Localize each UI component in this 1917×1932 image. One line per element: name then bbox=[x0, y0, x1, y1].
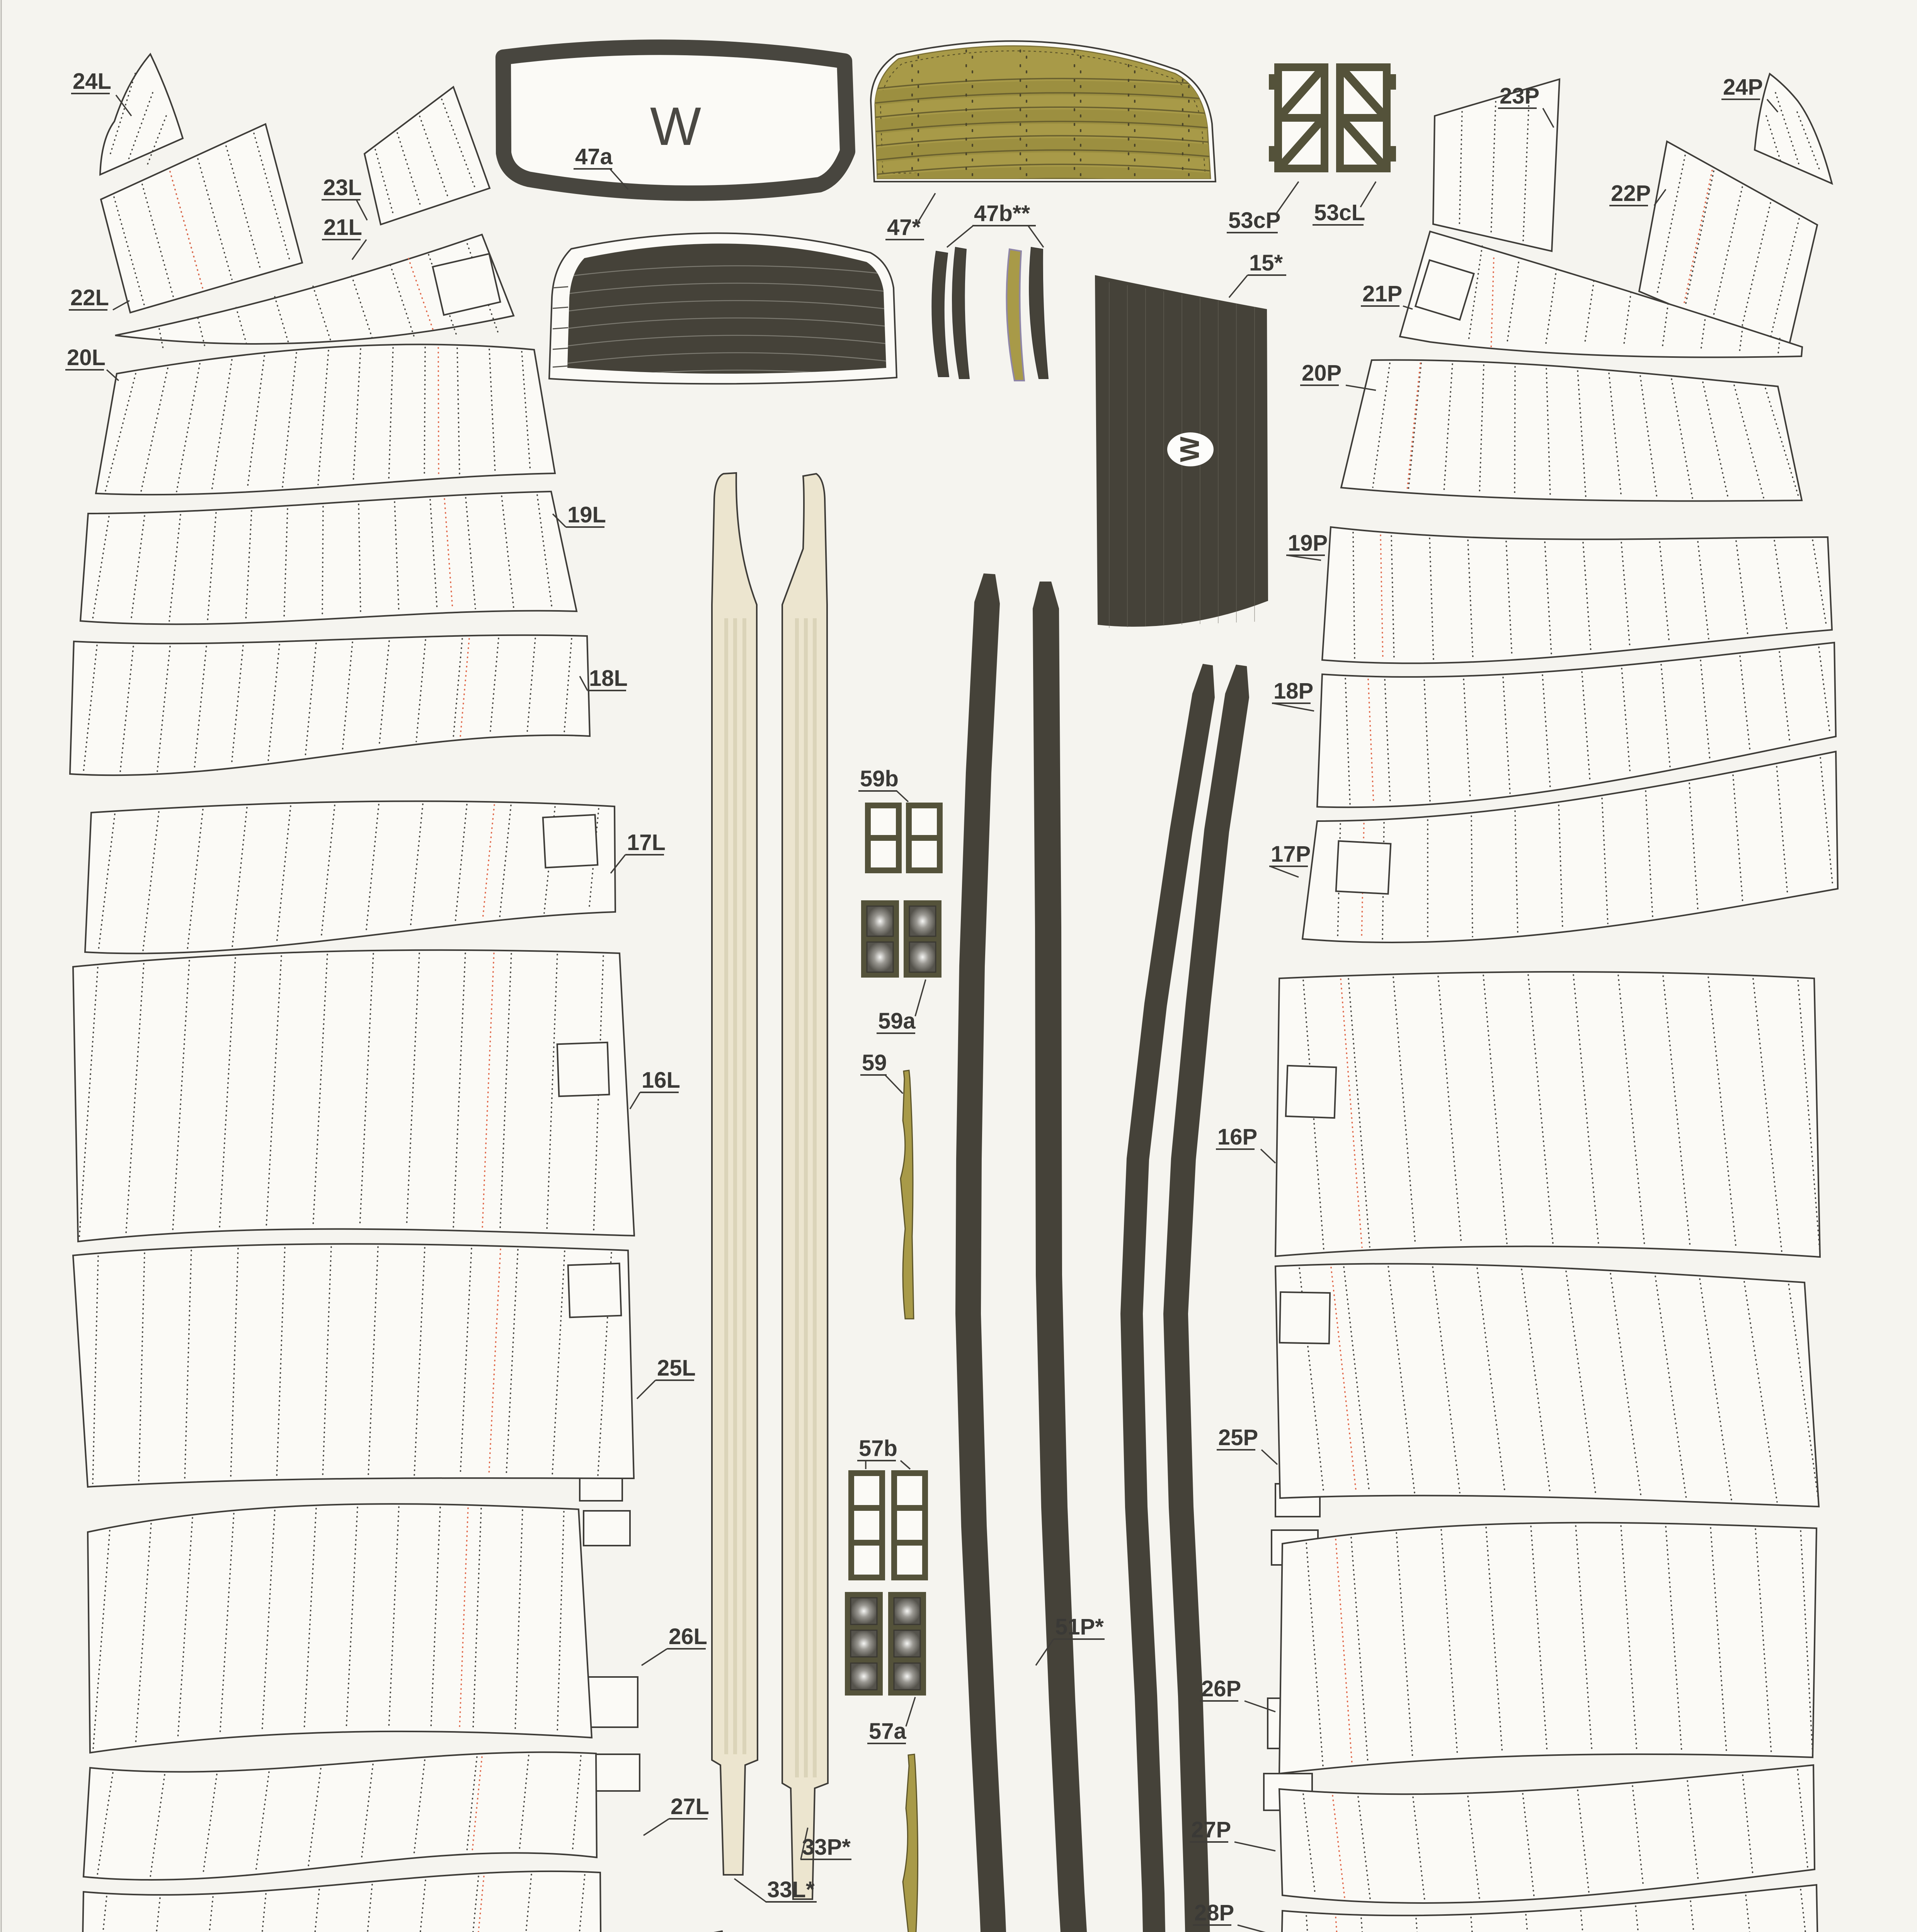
svg-text:W: W bbox=[650, 96, 701, 156]
svg-text:47*: 47* bbox=[887, 215, 921, 240]
svg-text:22P: 22P bbox=[1611, 181, 1651, 206]
svg-text:53cP: 53cP bbox=[1228, 208, 1280, 233]
svg-text:47a: 47a bbox=[575, 144, 613, 169]
svg-text:24P: 24P bbox=[1723, 75, 1763, 100]
svg-text:21P: 21P bbox=[1362, 281, 1402, 306]
svg-text:26P: 26P bbox=[1201, 1676, 1241, 1701]
svg-text:27L: 27L bbox=[671, 1794, 709, 1819]
svg-text:21L: 21L bbox=[323, 215, 362, 240]
svg-text:59a: 59a bbox=[878, 1009, 916, 1034]
svg-text:25L: 25L bbox=[657, 1355, 696, 1381]
svg-text:59b: 59b bbox=[860, 766, 899, 791]
svg-text:15*: 15* bbox=[1249, 250, 1283, 276]
svg-text:26L: 26L bbox=[669, 1624, 707, 1649]
svg-text:17L: 17L bbox=[627, 830, 666, 855]
svg-text:20P: 20P bbox=[1302, 361, 1342, 386]
svg-text:W: W bbox=[1175, 437, 1205, 462]
svg-text:53cL: 53cL bbox=[1314, 200, 1365, 225]
svg-text:28P: 28P bbox=[1194, 1900, 1234, 1925]
svg-text:18P: 18P bbox=[1273, 679, 1313, 704]
svg-text:23L: 23L bbox=[323, 175, 362, 200]
svg-text:57b: 57b bbox=[859, 1436, 897, 1461]
svg-text:16L: 16L bbox=[642, 1068, 680, 1093]
svg-text:59: 59 bbox=[862, 1050, 887, 1075]
svg-text:17P: 17P bbox=[1271, 842, 1311, 867]
svg-text:33P*: 33P* bbox=[802, 1835, 851, 1860]
svg-text:19P: 19P bbox=[1288, 531, 1328, 556]
svg-text:57a: 57a bbox=[869, 1719, 907, 1744]
svg-text:18L: 18L bbox=[589, 666, 628, 691]
svg-text:19L: 19L bbox=[567, 502, 606, 527]
svg-text:33L*: 33L* bbox=[767, 1877, 815, 1902]
svg-text:27P: 27P bbox=[1191, 1817, 1231, 1842]
svg-text:47b**: 47b** bbox=[974, 201, 1030, 226]
svg-text:20L: 20L bbox=[67, 345, 106, 370]
svg-text:25P: 25P bbox=[1218, 1425, 1258, 1450]
svg-text:16P: 16P bbox=[1217, 1124, 1257, 1150]
svg-text:24L: 24L bbox=[73, 69, 111, 94]
svg-text:51P*: 51P* bbox=[1055, 1614, 1104, 1639]
svg-text:23P: 23P bbox=[1500, 83, 1539, 109]
svg-text:22L: 22L bbox=[70, 285, 109, 310]
